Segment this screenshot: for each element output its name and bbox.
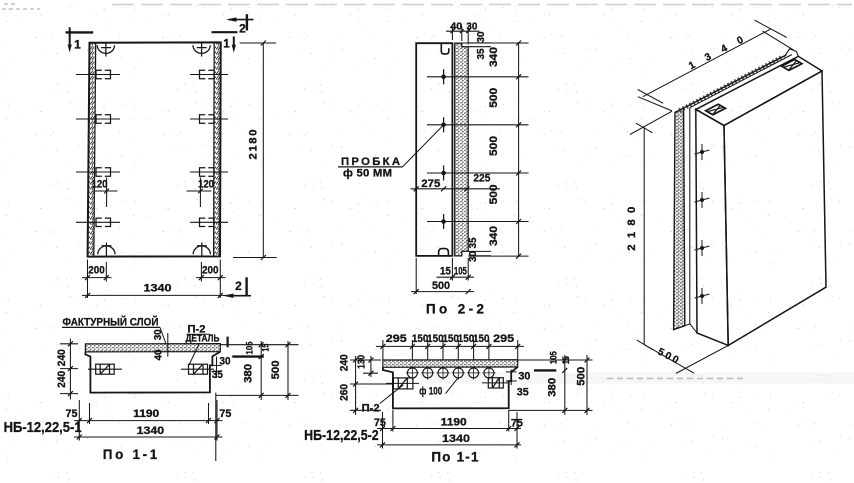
svg-text:30: 30: [518, 370, 530, 382]
svg-text:35: 35: [517, 387, 529, 399]
svg-text:30: 30: [153, 329, 164, 340]
svg-text:1340: 1340: [144, 283, 172, 295]
svg-text:340: 340: [488, 226, 500, 246]
svg-text:120: 120: [92, 179, 108, 191]
svg-text:105: 105: [548, 351, 559, 364]
svg-text:260: 260: [338, 384, 350, 401]
svg-text:30: 30: [220, 355, 231, 367]
svg-text:295: 295: [493, 333, 514, 345]
svg-text:35: 35: [212, 369, 223, 381]
svg-text:380: 380: [243, 364, 255, 383]
svg-text:1340: 1340: [137, 425, 165, 437]
svg-text:2: 2: [235, 279, 242, 293]
svg-text:75: 75: [219, 408, 231, 420]
svg-text:105: 105: [243, 342, 254, 355]
svg-text:ф 50 ММ: ф 50 ММ: [343, 168, 392, 180]
svg-text:30: 30: [476, 31, 487, 42]
svg-text:15: 15: [440, 265, 451, 277]
svg-text:150: 150: [458, 333, 475, 345]
svg-text:30: 30: [466, 22, 477, 33]
svg-text:НБ-12,22,5-1: НБ-12,22,5-1: [4, 419, 82, 436]
svg-text:500: 500: [488, 184, 500, 204]
svg-text:2: 2: [239, 22, 246, 36]
svg-text:ДЕТАЛЬ: ДЕТАЛЬ: [186, 334, 220, 345]
svg-text:225: 225: [473, 172, 490, 184]
svg-text:240: 240: [338, 354, 350, 371]
svg-text:295: 295: [386, 333, 407, 345]
svg-text:НБ-12,22,5-2: НБ-12,22,5-2: [304, 427, 379, 444]
svg-text:500: 500: [488, 136, 500, 156]
svg-text:105: 105: [454, 266, 467, 278]
svg-text:35: 35: [468, 237, 479, 248]
svg-text:ф 100: ф 100: [419, 385, 442, 397]
svg-text:1: 1: [74, 38, 81, 52]
svg-text:200: 200: [88, 265, 105, 277]
svg-text:ФАКТУРНЫЙ СЛОЙ: ФАКТУРНЫЙ СЛОЙ: [63, 315, 159, 328]
svg-text:240: 240: [56, 371, 68, 388]
svg-text:200: 200: [202, 265, 219, 277]
svg-text:240: 240: [56, 349, 68, 366]
svg-text:15: 15: [560, 356, 571, 364]
svg-text:2180: 2180: [247, 130, 259, 160]
svg-text:340: 340: [488, 47, 500, 67]
svg-text:150: 150: [473, 333, 490, 345]
svg-text:40: 40: [450, 22, 462, 33]
svg-text:500: 500: [432, 280, 450, 292]
svg-text:130: 130: [356, 355, 367, 369]
svg-text:500: 500: [575, 367, 587, 386]
svg-text:1190: 1190: [441, 417, 467, 429]
svg-text:1340: 1340: [442, 433, 470, 445]
svg-text:40: 40: [154, 349, 165, 360]
svg-text:500: 500: [488, 88, 500, 108]
svg-text:П-2: П-2: [362, 402, 380, 414]
svg-text:120: 120: [198, 179, 214, 191]
svg-text:По 1-1: По 1-1: [431, 449, 479, 464]
svg-text:150: 150: [442, 333, 459, 345]
svg-text:275: 275: [421, 178, 440, 190]
svg-text:380: 380: [546, 378, 558, 397]
svg-text:500: 500: [270, 360, 282, 379]
svg-text:1190: 1190: [133, 408, 159, 420]
svg-text:15: 15: [259, 344, 270, 352]
svg-text:75: 75: [511, 417, 523, 429]
svg-text:150: 150: [427, 333, 444, 345]
svg-text:35: 35: [476, 48, 487, 59]
svg-text:1: 1: [223, 38, 230, 51]
svg-text:150: 150: [412, 333, 429, 345]
